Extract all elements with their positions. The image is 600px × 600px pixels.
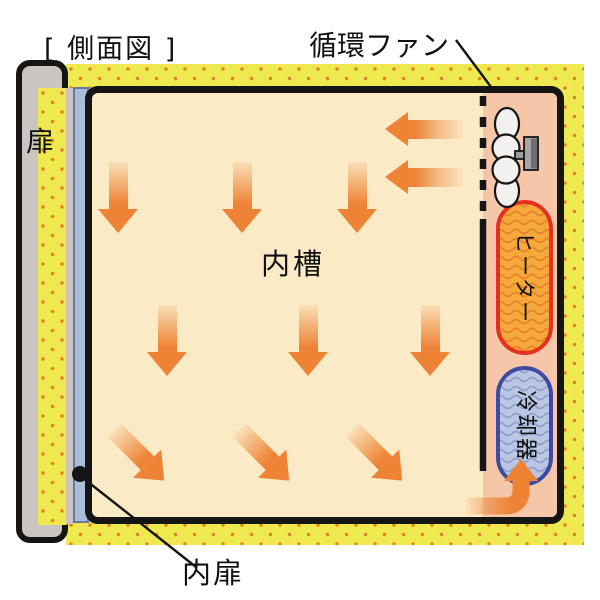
inner-door-label: 内扉 — [182, 550, 244, 592]
airflow-arrow-left — [385, 160, 463, 194]
airflow-arrow-down — [98, 162, 138, 233]
airflow-arrow-left — [385, 112, 463, 146]
heater-label: ヒーター — [510, 203, 540, 354]
airflow-arrow-down — [337, 162, 377, 233]
airflow-arrow-down — [147, 305, 187, 376]
cooler-label: 冷却器 — [510, 368, 540, 485]
door-label: 扉 — [26, 120, 54, 160]
diagram-title: [ 側面図 ] — [44, 27, 177, 66]
inner-tank-label: 内槽 — [261, 241, 325, 283]
airflow-arrow-down — [410, 305, 450, 376]
airflow-arrow-down — [288, 305, 328, 376]
airflow-arrow-down — [222, 162, 262, 233]
fan-label: 循環ファン — [309, 24, 449, 64]
circulation-fan-icon — [488, 103, 540, 209]
side-view-diagram: [ 側面図 ] 循環ファン 扉 内槽 内扉 ヒーター 冷却器 — [0, 0, 600, 600]
